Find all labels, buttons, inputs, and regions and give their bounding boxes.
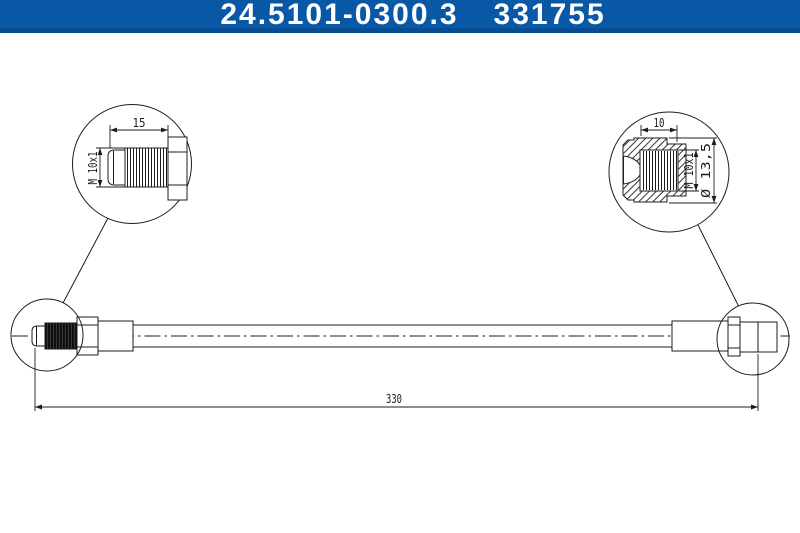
right-leader-line (698, 225, 739, 306)
left-length-label: 15 (133, 115, 146, 130)
right-hex-nut (728, 317, 740, 356)
dimension-thread-length: 15 (110, 115, 168, 148)
left-detail-threads (125, 148, 168, 187)
detail-view-left: 15 M 10x1 (73, 105, 192, 224)
right-thread-spec-label: M 10x1 (681, 153, 696, 189)
left-ferrule (98, 321, 133, 351)
part-number: 24.5101-0300.3 (220, 0, 458, 31)
overall-length-label: 330 (386, 391, 402, 406)
drawing-svg: 15 M 10x1 (0, 33, 800, 528)
right-detail-threads (642, 151, 677, 190)
detail-view-right: 10 M 10x1 Ø 13,5 (609, 112, 729, 232)
right-diameter-label: Ø 13,5 (698, 143, 713, 198)
dimension-overall-length: 330 (35, 348, 758, 411)
right-depth-label: 10 (654, 115, 665, 130)
hose-body (133, 325, 672, 347)
header-bar: 24.5101-0300.3 331755 (0, 0, 800, 33)
dimension-thread-spec-right: M 10x1 (679, 150, 699, 191)
right-end-fitting (672, 317, 777, 356)
reference-number: 331755 (494, 0, 606, 31)
technical-drawing: 15 M 10x1 (0, 33, 800, 528)
left-leader-line (63, 218, 108, 303)
screen: 24.5101-0300.3 331755 (0, 0, 800, 533)
left-thread-section (45, 323, 77, 349)
left-detail-nut (168, 137, 187, 200)
left-thread-spec-label: M 10x1 (85, 152, 100, 185)
